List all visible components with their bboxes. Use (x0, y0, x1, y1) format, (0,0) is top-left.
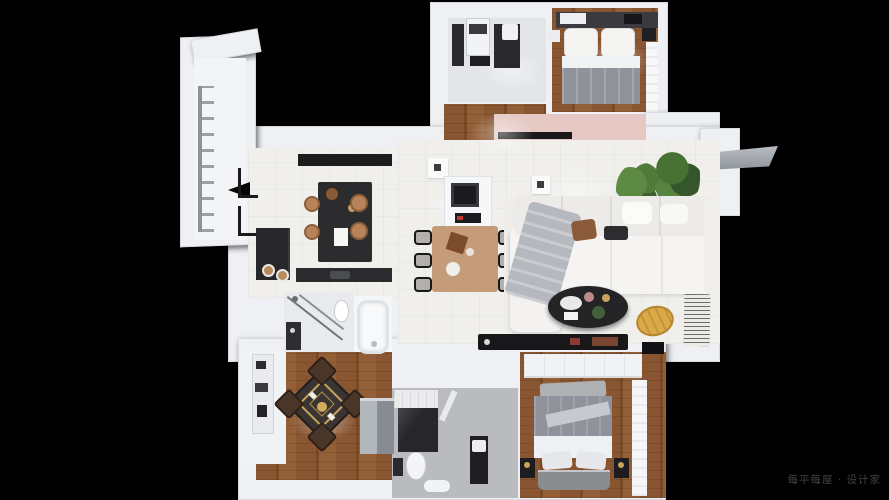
bed-second-duvet (562, 68, 640, 104)
gray-wardrobe (360, 398, 394, 454)
wall-shelf-1 (238, 168, 258, 198)
shower-tray (394, 390, 438, 408)
dining-table (432, 226, 498, 292)
bar-stool (304, 224, 320, 240)
coffee-table-tray (560, 296, 582, 310)
nightstand-master-right (614, 458, 629, 478)
sofa-pillow-white (622, 202, 652, 224)
vanity-sink (472, 440, 486, 452)
wall-art-2-dot (537, 181, 544, 188)
bar-stool (304, 196, 320, 212)
island-paper (334, 228, 348, 246)
bathmat (424, 480, 450, 492)
wall-shelf-2 (238, 206, 258, 236)
wall-art-1 (428, 158, 448, 178)
nightstand-second-right (642, 28, 656, 41)
kitchen-plate (276, 269, 289, 282)
coffee-table-gold-decor (602, 294, 610, 302)
bar-stool (350, 194, 368, 212)
bed-second-pillow-right (601, 28, 635, 58)
entry-closet-shoe-strip (498, 132, 572, 139)
bath-mat-dark (470, 56, 490, 66)
kitchen-island (318, 182, 372, 262)
island-bowl (326, 188, 338, 200)
kitchen-counter-bottom (296, 268, 392, 282)
faucet-dot (290, 328, 295, 333)
vanity-dark (470, 436, 488, 484)
drying-rack (198, 86, 214, 232)
washing-machine-door (469, 24, 487, 34)
toilet-middle (334, 300, 349, 322)
dining-chair (414, 253, 432, 268)
bath-sink-middle (286, 322, 301, 350)
tv-console (478, 334, 628, 350)
bed-master-pillow (541, 451, 572, 471)
master-wardrobe-top (524, 354, 642, 378)
bathtub (357, 300, 389, 354)
tv-console-media-brown (592, 337, 618, 346)
headboard-box-dark (624, 14, 642, 24)
shower-head (292, 296, 298, 302)
shelf-item (255, 383, 268, 392)
shelf-item (257, 405, 267, 417)
coffee-table-plant (592, 306, 605, 319)
nightstand-gold-decor (524, 462, 530, 468)
nightstand-master-left (520, 458, 535, 478)
shelf-item (256, 361, 266, 369)
bathtub-drain (371, 341, 377, 347)
washing-machine (466, 18, 490, 56)
toilet-bottom (406, 452, 426, 480)
table-box-brown (446, 232, 469, 255)
dining-chair (414, 230, 432, 245)
curtain-second (646, 42, 658, 112)
tv-console-knob (484, 339, 490, 345)
sideboard-red-dot (457, 216, 463, 220)
sofa-pillow-white (660, 204, 688, 224)
kitchen-sink (330, 271, 350, 279)
bar-stool (350, 222, 368, 240)
range-hood-strip (298, 154, 392, 166)
nightstand-second-left (548, 30, 560, 42)
sideboard-bar (455, 213, 481, 223)
bed-second-pillow-left (564, 28, 598, 58)
kitchen-plate (262, 264, 275, 277)
bed-master-pillow (575, 451, 606, 471)
table-small-item (466, 248, 474, 256)
sofa-tray-dark (604, 226, 628, 240)
wall-art-1-dot (434, 164, 441, 171)
coffee-table-book (564, 312, 578, 320)
curtain-master (632, 380, 647, 496)
floorplan-render: 每平每屋 · 设计家 (0, 0, 889, 500)
book-stack (684, 294, 711, 346)
nightstand-gold-decor (618, 462, 624, 468)
wall-art-2 (532, 176, 550, 194)
utility-shelf (252, 354, 274, 434)
headboard-box-white (560, 13, 586, 24)
sideboard-screen (451, 183, 479, 207)
bed-master-headboard (538, 470, 610, 490)
bath-sink (502, 24, 518, 40)
laundry-counter-left (452, 24, 464, 66)
coffee-table-pink-decor (584, 292, 594, 302)
dining-chair (414, 277, 432, 292)
table-plate (446, 262, 460, 276)
sofa-pillow-brown (571, 218, 598, 241)
sideboard (444, 176, 492, 232)
tv-speaker (642, 342, 664, 354)
watermark-text: 每平每屋 · 设计家 (787, 472, 881, 487)
coffee-table (548, 286, 628, 328)
tv-console-media-red (570, 338, 580, 345)
sofa-arm-right (704, 196, 720, 296)
shower-glass-dark (398, 408, 438, 452)
floor-drain-dark (393, 458, 403, 476)
